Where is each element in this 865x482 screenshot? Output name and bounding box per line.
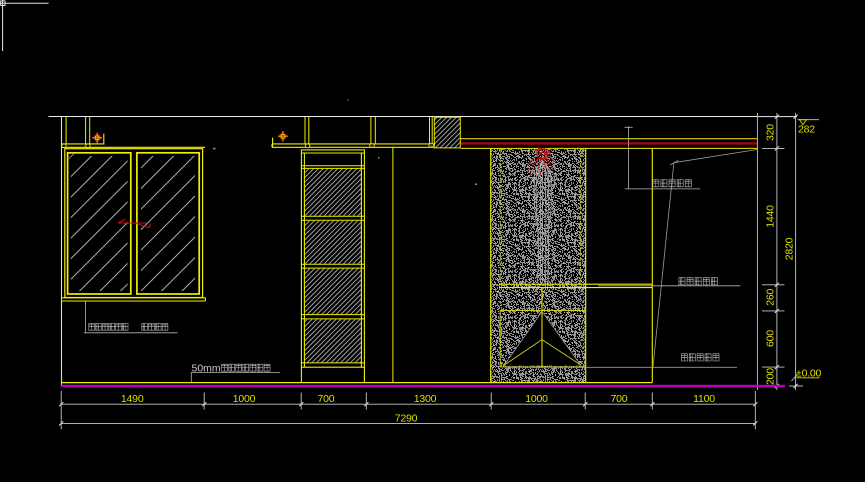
svg-text:1000: 1000 [525,393,548,405]
svg-text:260: 260 [765,288,777,305]
svg-text:200: 200 [765,368,777,385]
svg-text:1300: 1300 [414,393,437,405]
svg-text:700: 700 [318,393,335,405]
svg-text:1000: 1000 [233,393,256,405]
svg-text:282: 282 [798,123,815,135]
svg-text:7290: 7290 [395,412,418,424]
svg-text:1490: 1490 [121,393,144,405]
svg-text:50mm: 50mm [192,362,221,374]
svg-text:2820: 2820 [784,237,796,260]
svg-text:320: 320 [765,124,777,141]
svg-text:600: 600 [765,330,777,347]
svg-text:1100: 1100 [693,393,715,405]
svg-text:700: 700 [611,393,628,405]
svg-text:1440: 1440 [765,205,777,228]
